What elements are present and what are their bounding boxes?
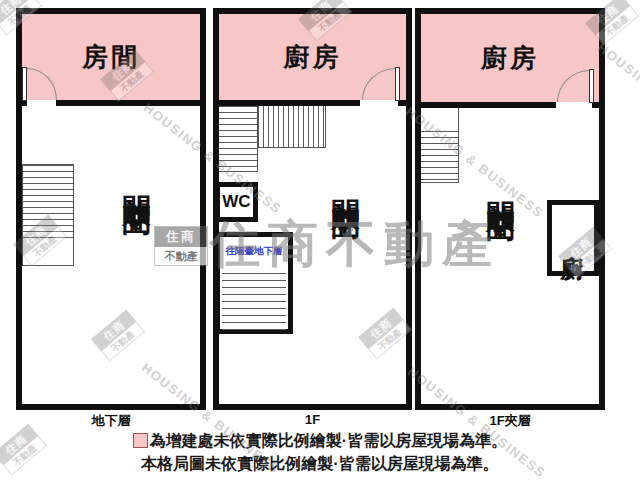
door-leaf-kitchen-1f xyxy=(395,67,400,101)
legend-line-1-text: 為增建處未依實際比例繪製·皆需以房屋現場為準。 xyxy=(150,432,507,449)
room-toilet: 廁所 xyxy=(547,200,599,276)
legend-line-2-text: 本格局圖未依實際比例繪製·皆需以房屋現場為準。 xyxy=(141,455,498,472)
room-bedroom-label: 房間 xyxy=(82,40,140,75)
stairs-to-basement: 往陽臺地下層 xyxy=(215,232,293,334)
stairs-mezzanine xyxy=(421,108,459,183)
floor-label-mezzanine: 1F夾層 xyxy=(415,412,605,430)
stairs-steps xyxy=(23,165,73,243)
stairs-1f-vertical-run xyxy=(219,106,258,172)
room-kitchen-1f-label: 廚房 xyxy=(284,40,342,75)
room-wc: WC xyxy=(215,182,258,222)
legend-line-2: 本格局圖未依實際比例繪製·皆需以房屋現場為準。 xyxy=(0,454,640,475)
stairs-basement xyxy=(22,164,74,266)
open-space-label-1f: 開放空間 xyxy=(329,176,363,192)
stairs-steps xyxy=(421,131,458,183)
open-space-label-mezz: 開放空間 xyxy=(484,178,518,194)
legend-line-1: 為增建處未依實際比例繪製·皆需以房屋現場為準。 xyxy=(0,431,640,452)
open-space-label-basement: 開放空間 xyxy=(120,172,154,188)
floorplan-image: 房間 開放空間 地下層 廚房 WC 往陽臺地下層 開放空間 1F 廚房 廁所 xyxy=(0,0,640,480)
stairs-steps xyxy=(222,273,286,331)
door-leaf-kitchen-mezz xyxy=(589,69,594,103)
wall-bedroom-bottom xyxy=(56,100,200,106)
legend-pink-swatch xyxy=(133,433,148,448)
stairs-1f-horizontal-run xyxy=(258,106,326,148)
floor-label-basement: 地下層 xyxy=(16,412,206,430)
stairs-note: 往陽臺地下層 xyxy=(220,245,288,258)
floor-label-1f: 1F xyxy=(213,412,412,427)
door-leaf-bedroom xyxy=(22,67,27,101)
room-wc-label: WC xyxy=(220,187,253,217)
room-toilet-label: 廁所 xyxy=(552,205,594,271)
room-kitchen-mezz-label: 廚房 xyxy=(481,41,539,76)
